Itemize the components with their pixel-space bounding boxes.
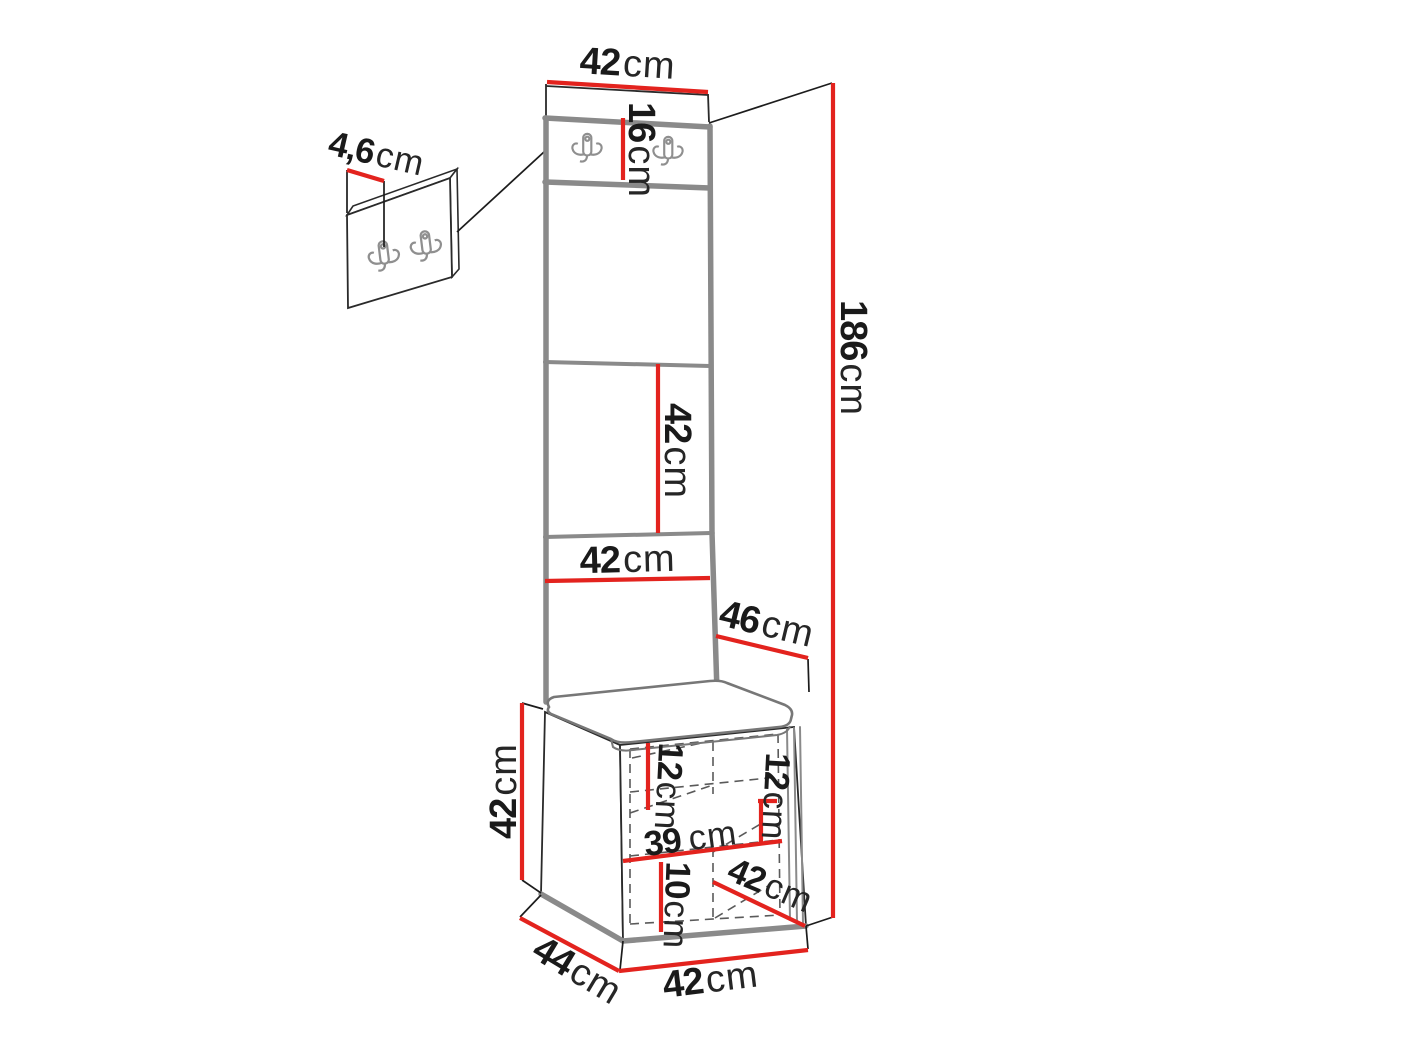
ext-total-height-bottom bbox=[806, 917, 833, 926]
furniture-dimension-diagram: 42cm 16cm 4,6cm 186cm 42cm 42cm 46cm 42c… bbox=[0, 0, 1408, 1056]
ext-base-width bbox=[806, 926, 808, 949]
dim-hook-panel-height-label: 16cm bbox=[620, 102, 662, 198]
ext-top-depth bbox=[808, 659, 809, 692]
dim-base-width-label: 42cm bbox=[660, 953, 760, 1006]
ext-base-corner bbox=[620, 941, 623, 970]
bench-left-side-face bbox=[541, 712, 623, 941]
dim-top-width-label: 42cm bbox=[579, 40, 677, 88]
ext-bench-height-bottom bbox=[522, 880, 541, 893]
dim-thickness-label: 4,6cm bbox=[325, 124, 429, 184]
dim-upper-panel-height-label: 42cm bbox=[656, 403, 698, 499]
dim-base-depth-label: 44cm bbox=[525, 928, 629, 1013]
dim-inner-top-left-label: 12cm bbox=[647, 742, 691, 832]
dim-inner-top-right-label: 12cm bbox=[754, 752, 798, 842]
tall-panel-right-edge bbox=[710, 126, 712, 533]
tall-panel-right-upper-edge bbox=[708, 94, 709, 122]
dim-panel-width-label: 42cm bbox=[579, 538, 676, 582]
detail-callout-line bbox=[457, 140, 557, 232]
ext-total-height-top bbox=[709, 83, 832, 123]
ext-base-depth bbox=[520, 895, 541, 917]
dim-total-height-label: 186cm bbox=[832, 300, 874, 416]
dim-inner-bottom-label: 10cm bbox=[655, 861, 697, 950]
dim-bench-height-label: 42cm bbox=[483, 743, 525, 839]
ext-bench-height-top bbox=[522, 703, 543, 709]
